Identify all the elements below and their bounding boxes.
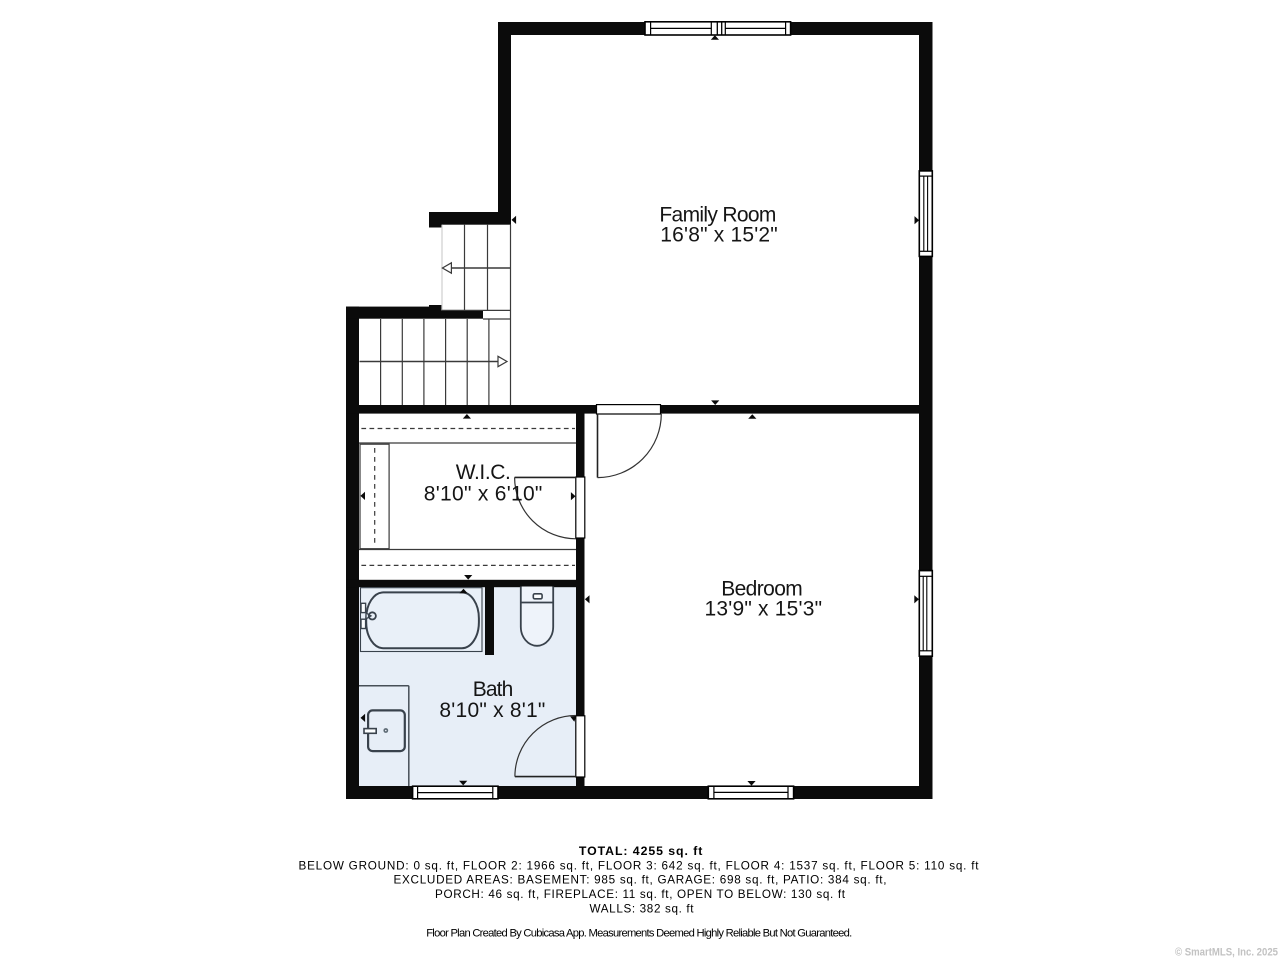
svg-text:PORCH: 46 sq. ft, FIREPLACE: 1: PORCH: 46 sq. ft, FIREPLACE: 11 sq. ft, … [435, 888, 846, 901]
svg-text:BELOW GROUND: 0 sq. ft, FLOOR: BELOW GROUND: 0 sq. ft, FLOOR 2: 1966 sq… [299, 859, 980, 872]
svg-text:16'8" x 15'2": 16'8" x 15'2" [660, 224, 778, 247]
svg-text:WALLS: 382 sq. ft: WALLS: 382 sq. ft [590, 903, 695, 916]
svg-text:8'10" x 8'1": 8'10" x 8'1" [439, 699, 545, 722]
svg-text:Bath: Bath [473, 678, 514, 701]
svg-text:TOTAL: 4255 sq. ft: TOTAL: 4255 sq. ft [579, 844, 703, 858]
svg-text:EXCLUDED AREAS: BASEMENT: 985: EXCLUDED AREAS: BASEMENT: 985 sq. ft, GA… [394, 874, 887, 887]
svg-text:13'9" x 15'3": 13'9" x 15'3" [705, 598, 823, 621]
svg-text:8'10" x 6'10": 8'10" x 6'10" [424, 483, 543, 506]
svg-text:© SmartMLS, Inc. 2025: © SmartMLS, Inc. 2025 [1175, 947, 1278, 959]
svg-text:Floor Plan Created By Cubicasa: Floor Plan Created By Cubicasa App. Meas… [426, 928, 852, 940]
svg-text:W.I.C.: W.I.C. [456, 461, 511, 484]
